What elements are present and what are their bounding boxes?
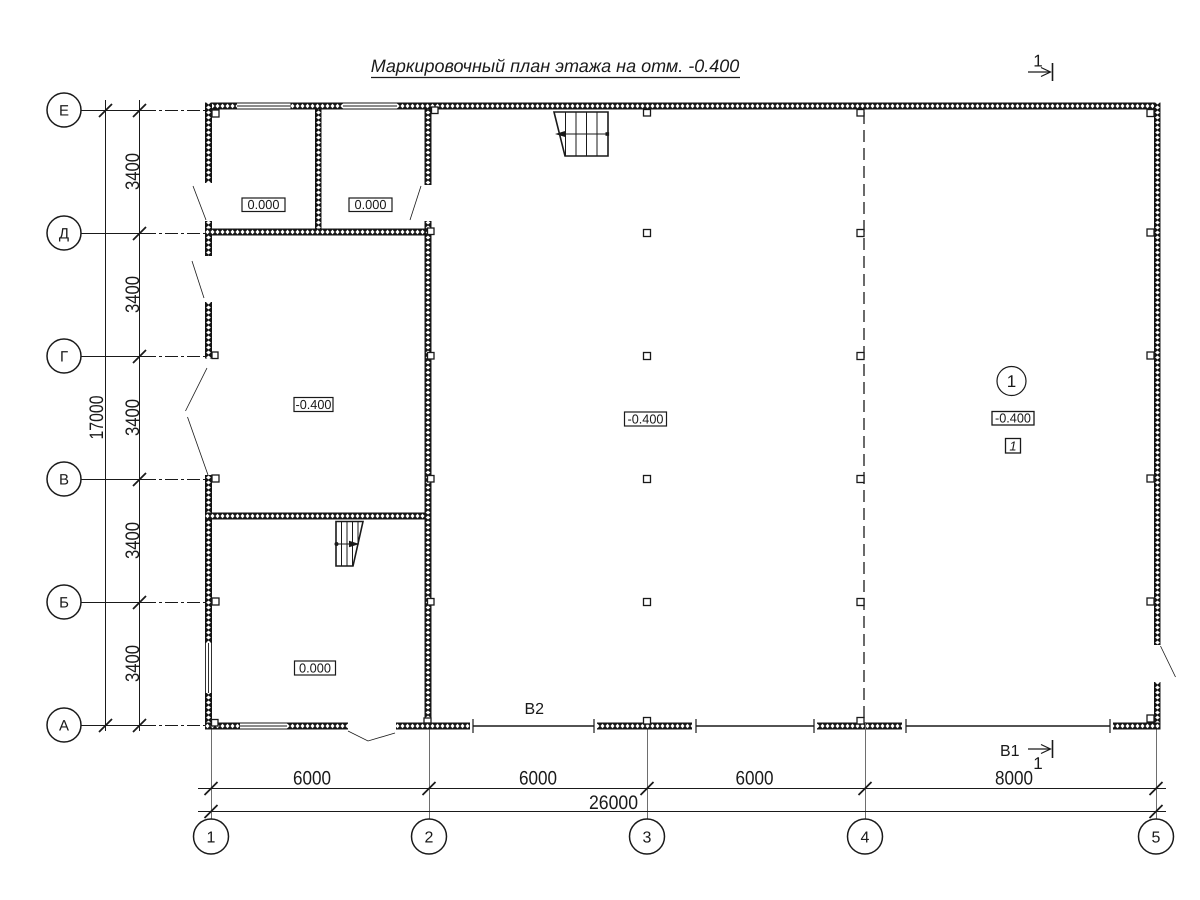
svg-text:1: 1 xyxy=(1033,52,1042,71)
svg-text:В: В xyxy=(59,472,69,489)
svg-text:2: 2 xyxy=(425,830,434,847)
svg-text:Е: Е xyxy=(59,103,69,120)
svg-text:А: А xyxy=(59,718,69,735)
svg-text:-0.400: -0.400 xyxy=(628,412,664,427)
svg-text:6000: 6000 xyxy=(736,768,774,790)
svg-text:3400: 3400 xyxy=(122,276,144,313)
svg-text:6000: 6000 xyxy=(293,768,331,790)
svg-text:Г: Г xyxy=(60,349,68,366)
svg-text:1: 1 xyxy=(1009,439,1016,454)
svg-text:Д: Д xyxy=(59,226,69,243)
svg-text:1: 1 xyxy=(1033,754,1042,773)
svg-text:В2: В2 xyxy=(525,701,545,718)
svg-text:8000: 8000 xyxy=(995,768,1033,790)
svg-text:26000: 26000 xyxy=(589,792,638,814)
svg-text:5: 5 xyxy=(1152,830,1161,847)
svg-text:Маркировочный план этажа на от: Маркировочный план этажа на отм. -0.400 xyxy=(371,56,740,76)
svg-text:1: 1 xyxy=(207,830,216,847)
svg-text:-0.400: -0.400 xyxy=(995,411,1031,426)
svg-text:0.000: 0.000 xyxy=(248,197,280,212)
svg-text:4: 4 xyxy=(861,830,870,847)
svg-text:3400: 3400 xyxy=(122,522,144,559)
svg-text:Б: Б xyxy=(59,595,69,612)
svg-text:-0.400: -0.400 xyxy=(296,397,332,412)
svg-text:17000: 17000 xyxy=(86,395,108,439)
svg-text:1: 1 xyxy=(1007,372,1016,391)
svg-text:3400: 3400 xyxy=(122,645,144,682)
svg-text:6000: 6000 xyxy=(519,768,557,790)
svg-text:3400: 3400 xyxy=(122,399,144,436)
svg-text:В1: В1 xyxy=(1000,743,1020,760)
svg-text:3: 3 xyxy=(643,830,652,847)
svg-text:0.000: 0.000 xyxy=(355,197,387,212)
svg-text:0.000: 0.000 xyxy=(299,661,331,676)
svg-text:3400: 3400 xyxy=(122,153,144,190)
